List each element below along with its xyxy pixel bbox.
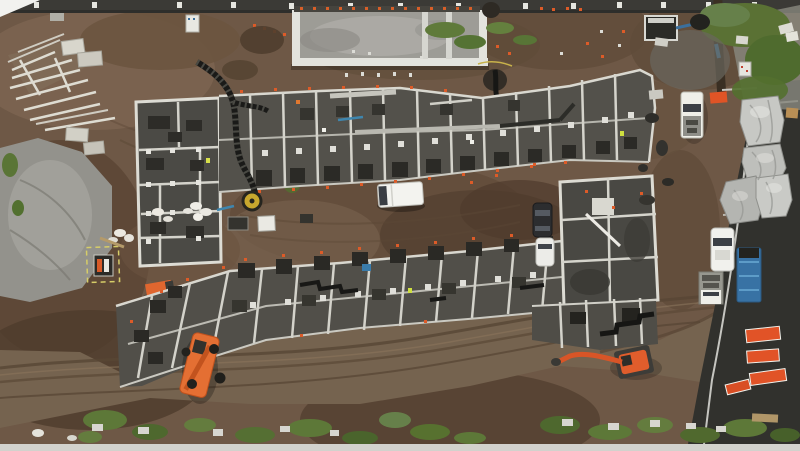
orange-bin (710, 91, 728, 103)
ground-debris (662, 178, 674, 186)
tarp-stack (756, 174, 792, 218)
tarp-highlight (750, 106, 770, 118)
work-table (50, 13, 64, 21)
screenshot-root (0, 0, 800, 451)
telehandler-wheel (182, 348, 191, 357)
cardboard-box (786, 107, 799, 118)
vegetation (235, 427, 275, 443)
telehandler-wheel (215, 373, 226, 384)
vegetation (410, 424, 450, 440)
tarp-highlight (756, 153, 774, 163)
telehandler-wheel (187, 379, 197, 389)
pallet-stack (83, 141, 104, 155)
cement-sacks (183, 208, 193, 214)
pallet-stack (77, 51, 102, 67)
cement-sacks (152, 208, 164, 216)
tarp-stack (740, 96, 784, 146)
stored-pallet (736, 35, 749, 44)
south-block-shadow (570, 269, 610, 295)
vegetation (680, 427, 720, 443)
cement-sacks (114, 229, 126, 237)
ground-debris-light (32, 429, 44, 437)
stored-pallet (649, 89, 664, 99)
tarp-highlight (766, 183, 782, 193)
vegetation (513, 35, 537, 45)
white-van-windshield (378, 186, 387, 206)
dirt-mound (240, 26, 284, 54)
vegetation (342, 431, 378, 445)
vegetation (770, 428, 800, 442)
site-notice-board (186, 15, 199, 32)
white-suv-roof (715, 250, 730, 260)
vegetation (132, 424, 168, 440)
cement-sacks (190, 202, 202, 210)
dirt-patch (80, 10, 240, 70)
south-block-pad (592, 198, 614, 215)
storage-box (258, 216, 276, 232)
worker-hivis (296, 100, 300, 104)
excavator-bucket (551, 358, 561, 366)
ground-debris (656, 140, 668, 156)
photo-border-bottom (0, 444, 800, 451)
vegetation (288, 419, 332, 437)
vegetation (540, 416, 580, 434)
ground-debris (639, 195, 655, 205)
excavation-hole (482, 2, 500, 18)
site-sign (739, 62, 751, 76)
south-extension (532, 300, 658, 350)
wall-form-strip (294, 6, 480, 12)
white-car-windshield (538, 244, 552, 249)
dirt-mound (222, 60, 258, 80)
blue-marker (362, 264, 371, 271)
tarp-highlight (732, 191, 748, 201)
pit-stripe-orange (97, 259, 102, 272)
ground-debris-light (67, 435, 77, 441)
utility-box-lid (648, 18, 674, 23)
vegetation (78, 431, 102, 443)
open-pit (300, 214, 313, 223)
white-pickup-windshield (683, 104, 701, 112)
white-suv-windshield (713, 238, 732, 246)
fenced-pit (94, 255, 113, 276)
vegetation (12, 200, 24, 216)
vegetation (379, 412, 411, 428)
retaining-wall-left (292, 10, 300, 66)
blue-truck-cab (739, 248, 759, 258)
wood-plank (752, 413, 778, 422)
ground-debris (638, 164, 648, 172)
dark-car-body (533, 203, 552, 237)
traffic-barrier (747, 349, 780, 363)
vegetation (184, 418, 216, 432)
ground-debris (690, 14, 710, 30)
ground-debris (645, 113, 659, 123)
cement-sacks (124, 234, 134, 242)
cable-spool-hub (250, 199, 255, 204)
vegetation (486, 22, 514, 34)
vegetation (2, 153, 18, 177)
cement-sacks (163, 216, 173, 222)
worker-hivis (620, 131, 624, 136)
pallet-stack (66, 127, 89, 142)
flatbed-windshield (703, 292, 719, 296)
cement-sacks (193, 213, 203, 221)
worker-hivis (408, 288, 412, 293)
white-car-body (536, 238, 554, 266)
pit-stripe-white (104, 259, 109, 272)
open-pit (228, 217, 248, 230)
vegetation (454, 35, 486, 49)
vegetation (425, 22, 465, 38)
retaining-wall-inner (422, 11, 428, 59)
vegetation (454, 432, 486, 444)
vegetation (83, 410, 127, 430)
south-block-shadow (624, 218, 650, 262)
retaining-wall-bottom (292, 58, 488, 66)
worker-hivis (206, 158, 210, 163)
construction-site-photo (0, 0, 800, 451)
white-suv-body (711, 228, 734, 271)
retaining-wall-mottle (300, 28, 360, 52)
telehandler-wheel (209, 344, 219, 354)
